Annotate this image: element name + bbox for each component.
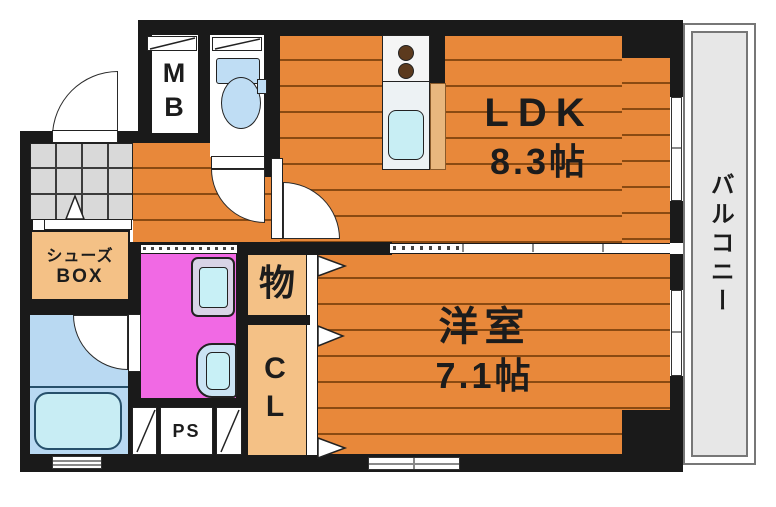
window-sash <box>53 464 101 466</box>
meter-box-label: M B <box>150 56 198 124</box>
ldk-door <box>271 158 283 239</box>
window-bath-bottom <box>52 456 102 469</box>
toilet-flush-icon <box>257 79 267 94</box>
washing-machine-drum-icon <box>199 267 228 308</box>
ldk-label: LDK 8.3帖 <box>428 88 650 186</box>
balcony-label: バルコニー <box>706 172 734 317</box>
window-western-balcony <box>671 290 682 376</box>
toilet-louver <box>212 37 262 51</box>
pipe-space-label: PS <box>172 421 200 442</box>
partition-track-marks <box>393 246 459 250</box>
wall <box>28 301 135 315</box>
meter-box-louver <box>147 36 197 51</box>
window-sash <box>672 147 681 149</box>
pipe-space: PS <box>160 407 213 455</box>
western-room-name: 洋室 <box>372 302 597 352</box>
wall <box>670 201 683 243</box>
bath-divider <box>30 386 128 388</box>
balcony-inner: バルコニー <box>691 31 748 457</box>
wall <box>670 35 683 97</box>
bathtub-icon <box>34 392 122 450</box>
shoes-box-label: シューズ BOX <box>30 248 130 288</box>
shoes-box-label-line1: シューズ <box>30 248 130 266</box>
window-sash <box>53 460 101 462</box>
partition-segment <box>462 244 464 252</box>
door-track-marks <box>143 247 235 250</box>
duct-space <box>132 407 157 455</box>
stove-burner-icon <box>398 45 414 61</box>
bath-door <box>128 314 141 372</box>
partition-end <box>670 243 683 254</box>
ldk-name: LDK <box>428 88 650 138</box>
kitchen-sink-icon <box>388 110 424 160</box>
window-sash <box>413 458 415 469</box>
meter-box-label-m: M <box>150 56 198 90</box>
partition-segment <box>532 244 534 252</box>
wall <box>430 30 445 83</box>
wall <box>264 20 280 177</box>
toilet-bowl-icon <box>221 77 261 129</box>
vanity-bowl-icon <box>206 352 230 390</box>
window-sash <box>672 331 681 333</box>
window-western-bottom <box>368 457 460 470</box>
duct-space <box>216 407 242 455</box>
shoes-box-label-line2: BOX <box>30 266 130 288</box>
washroom-sliding-door <box>140 244 238 254</box>
sliding-partition <box>390 243 670 254</box>
wall <box>118 131 138 143</box>
wall <box>670 253 683 290</box>
closet-label-c: C <box>250 350 300 388</box>
western-room-size: 7.1帖 <box>372 352 597 400</box>
entry-step <box>44 219 132 230</box>
storage-label: 物 <box>248 262 306 303</box>
closet-label-l: L <box>250 388 300 426</box>
genkan-tiles <box>30 143 133 220</box>
wall <box>20 131 54 143</box>
wall <box>20 454 683 472</box>
partition-segment <box>602 244 604 252</box>
entry-door <box>52 130 118 143</box>
toilet-door <box>211 156 265 169</box>
wall <box>138 133 210 143</box>
wall <box>248 315 310 325</box>
stove-burner-icon <box>398 63 414 79</box>
wall <box>140 20 683 36</box>
window-ldk-balcony <box>671 97 682 201</box>
meter-box-label-b: B <box>150 90 198 124</box>
western-room-label: 洋室 7.1帖 <box>372 302 597 400</box>
closet-label: C L <box>250 350 300 426</box>
ldk-size: 8.3帖 <box>428 138 650 186</box>
wall <box>198 20 210 143</box>
closet-front <box>306 255 318 455</box>
floor-plan: バルコニー シューズ BOX 物 C L <box>0 0 776 507</box>
entry-door-swing <box>52 71 118 137</box>
